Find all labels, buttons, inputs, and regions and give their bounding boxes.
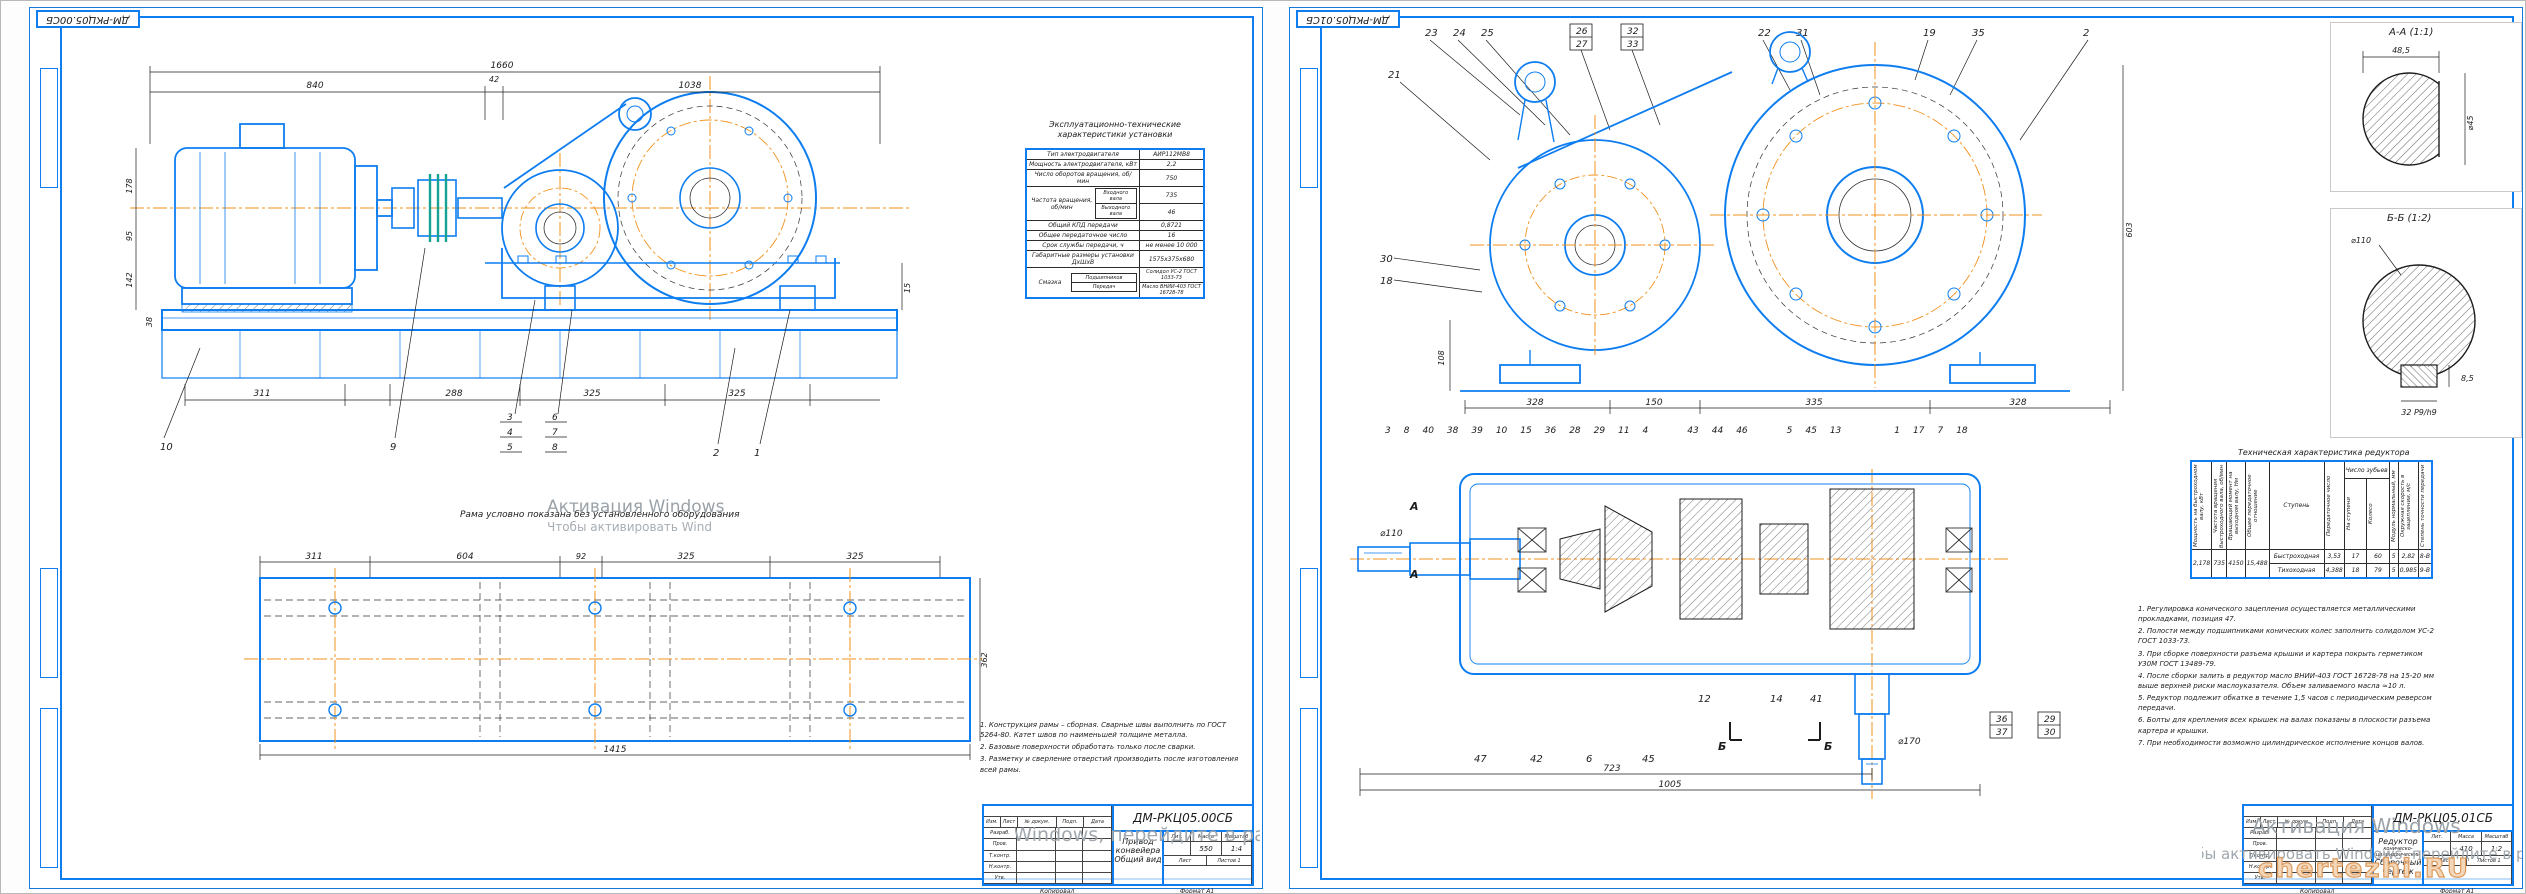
part-callout: 18 bbox=[1956, 426, 1967, 436]
part-callout: 13 bbox=[1830, 426, 1841, 436]
part-callout: 40 bbox=[1422, 426, 1433, 436]
part-callout: 44 bbox=[1712, 426, 1723, 436]
dim-label: 723 bbox=[1603, 764, 1620, 774]
part-callout: 35 bbox=[1972, 28, 1985, 39]
technical-notes: 1. Конструкция рамы – сборная. Сварные ш… bbox=[980, 720, 1242, 777]
spec-label: Срок службы передачи, ч bbox=[1026, 241, 1140, 251]
chertezhi-watermark: chertezhi.RU bbox=[2258, 854, 2470, 884]
dim-label: 38 bbox=[145, 317, 154, 327]
part-callout: 38 bbox=[1447, 426, 1458, 436]
kopiroval-label: Копировал bbox=[2300, 888, 2334, 894]
tech-cell: 8-В bbox=[2418, 550, 2432, 564]
part-callout: 2 bbox=[2083, 28, 2089, 39]
dim-label: 178 bbox=[125, 178, 134, 193]
spec-table: Тип электродвигателяАИР112МВ8 Мощность э… bbox=[1025, 148, 1205, 299]
part-callout: 19 bbox=[1923, 28, 1936, 39]
tech-cell: 2,82 bbox=[2398, 550, 2418, 564]
dim-label: 95 bbox=[125, 231, 134, 241]
part-callout: 33 bbox=[1627, 40, 1639, 50]
dim-label: 288 bbox=[445, 389, 462, 399]
sheet-right: ДМ-РКЦ05.01СБ 23 24 25 26 27 32 33 bbox=[1289, 7, 2523, 889]
tech-value: 4150 bbox=[2227, 550, 2245, 578]
callout-leaders bbox=[1394, 40, 2088, 292]
tech-cell: 0,985 bbox=[2398, 564, 2418, 578]
part-callout: 5 bbox=[507, 443, 513, 453]
dim-label: 142 bbox=[125, 272, 134, 287]
note-item: 2. Базовые поверхности обработать только… bbox=[980, 742, 1242, 752]
spec-value: 735 bbox=[1140, 187, 1205, 204]
part-callout: 46 bbox=[1736, 426, 1747, 436]
cut-plane-marks bbox=[1730, 722, 1820, 740]
spec-value: 2,2 bbox=[1140, 160, 1205, 170]
part-callout: 26 bbox=[1576, 27, 1588, 37]
part-callout: 10 bbox=[1496, 426, 1507, 436]
dimension-lines bbox=[136, 66, 902, 406]
dim-label: 108 bbox=[1437, 350, 1446, 365]
dim-label: 325 bbox=[583, 389, 600, 399]
part-callout: 41 bbox=[1810, 694, 1823, 705]
note-item: 6. Болты для крепления всех крышек на ва… bbox=[2138, 715, 2438, 735]
part-callout: 29 bbox=[1594, 426, 1605, 436]
dim-label: 92 bbox=[576, 552, 586, 561]
part-callout: 18 bbox=[1380, 276, 1393, 287]
tech-cell: 17 bbox=[2344, 550, 2366, 564]
windows-activation-watermark: Активация Windows bbox=[2252, 814, 2461, 838]
part-callout: 8 bbox=[552, 443, 558, 453]
note-item: 4. После сборки залить в редуктор масло … bbox=[2138, 671, 2438, 691]
note-item: 2. Полости между подшипниками конических… bbox=[2138, 626, 2438, 646]
tech-cell: 3,53 bbox=[2324, 550, 2344, 564]
tech-header: Общее передаточное отношение bbox=[2247, 464, 2259, 548]
tb-label: Н.контр. bbox=[984, 862, 1017, 873]
section-aa-label: А-А (1:1) bbox=[2389, 27, 2433, 38]
tb-label: Разраб. bbox=[984, 828, 1017, 839]
part-callout: 11 bbox=[1618, 426, 1629, 436]
tb-label: Лист bbox=[1164, 856, 1207, 866]
part-callout: 37 bbox=[1996, 728, 2008, 738]
part-callout: 27 bbox=[1576, 40, 1588, 50]
spec-value: 750 bbox=[1140, 170, 1205, 187]
tech-cell: Быстроходная bbox=[2269, 550, 2324, 564]
note-item: 3. Разметку и сверление отверстий произв… bbox=[980, 754, 1242, 774]
plan-centerlines bbox=[244, 568, 982, 750]
watermark-text: Чтобы активировать Windows, перейдите в … bbox=[1015, 824, 1260, 846]
tb-label: Т.контр. bbox=[984, 851, 1017, 862]
margin-box bbox=[40, 68, 58, 188]
spec-label: Мощность электродвигателя, кВт bbox=[1026, 160, 1140, 170]
part-callout: 21 bbox=[1388, 70, 1401, 81]
tech-value: 2,178 bbox=[2191, 550, 2212, 578]
spec-value: 16 bbox=[1140, 231, 1205, 241]
dim-label: 311 bbox=[253, 389, 270, 399]
part-callout: 30 bbox=[1380, 254, 1393, 265]
spec-value: Масло ВНИИ-403 ГОСТ 16728-78 bbox=[1140, 283, 1205, 299]
part-callout: 9 bbox=[390, 442, 396, 453]
dim-label: 150 bbox=[1645, 398, 1662, 408]
front-centerlines bbox=[1470, 42, 2042, 388]
part-callout: 15 bbox=[1520, 426, 1531, 436]
dim-label: 603 bbox=[2125, 222, 2134, 237]
part-callout: 17 bbox=[1913, 426, 1924, 436]
part-callout: 6 bbox=[552, 413, 558, 423]
part-callout: 4 bbox=[1643, 426, 1649, 436]
part-callout: 10 bbox=[160, 442, 173, 453]
dim-label: ⌀170 bbox=[1898, 737, 1921, 747]
tech-cell: 5 bbox=[2389, 550, 2398, 564]
part-callout: 39 bbox=[1471, 426, 1482, 436]
cut-label-b: Б bbox=[1718, 740, 1726, 753]
dim-label: 335 bbox=[1805, 398, 1822, 408]
spec-label: Габаритные размеры установки ДхШхВ bbox=[1026, 251, 1140, 268]
part-callout: 3 bbox=[507, 413, 513, 423]
dim-label: 325 bbox=[677, 552, 694, 562]
spec-value: не менее 10 000 bbox=[1140, 241, 1205, 251]
spec-value: Солидол УС-2 ГОСТ 1033-73 bbox=[1140, 268, 1205, 283]
dim-label: 32 P9/h9 bbox=[2401, 408, 2437, 417]
tech-header: Число зубьев bbox=[2344, 461, 2389, 479]
tech-cell: 9-В bbox=[2418, 564, 2432, 578]
windows-activation-watermark-overlay: Чтобы активировать Windows, перейдите в … bbox=[1015, 824, 1260, 850]
tech-cell: Тихоходная bbox=[2269, 564, 2324, 578]
cut-label-a: А bbox=[1410, 500, 1419, 513]
tech-header: Мощность на быстроходном валу, кВт bbox=[2193, 464, 2205, 548]
part-callout: 12 bbox=[1698, 694, 1711, 705]
note-item: 5. Редуктор подлежит обкатке в течение 1… bbox=[2138, 693, 2438, 713]
drawing-viewer: ДМ-РКЦ05.00СБ bbox=[0, 0, 2526, 894]
dim-label: 15 bbox=[903, 283, 912, 293]
reducer-housing bbox=[458, 92, 840, 310]
dim-label: 311 bbox=[305, 552, 322, 562]
dim-label: 1038 bbox=[679, 81, 702, 91]
spec-value: 46 bbox=[1140, 204, 1205, 221]
part-callout: 1 bbox=[1894, 426, 1900, 436]
part-callout: 36 bbox=[1996, 715, 2008, 725]
part-callout: 3 bbox=[1385, 426, 1391, 436]
spec-caption-line1: Эксплуатационно-технические bbox=[1049, 120, 1181, 129]
reducer-front-view: 23 24 25 26 27 32 33 22 31 19 35 2 21 30… bbox=[1370, 20, 2140, 420]
tech-header: Передаточное число bbox=[2326, 464, 2332, 548]
dim-label: 8,5 bbox=[2461, 374, 2474, 383]
plan-dim-lines bbox=[260, 556, 980, 760]
reducer-section-view: Б Б ⌀110 ⌀170 723 1005 47 42 6 45 12 14 … bbox=[1350, 444, 2100, 804]
section-callout-row: 3 8 40 38 39 10 15 36 28 29 11 4 43 44 4… bbox=[1385, 426, 1968, 436]
section-bb-label: Б-Б (1:2) bbox=[2387, 213, 2431, 224]
tech-cell: 79 bbox=[2367, 564, 2389, 578]
spec-label: Число оборотов вращения, об/мин bbox=[1026, 170, 1140, 187]
tb-label: Утв. bbox=[984, 873, 1017, 884]
part-callout: 5 bbox=[1787, 426, 1793, 436]
note-item: 1. Конструкция рамы – сборная. Сварные ш… bbox=[980, 720, 1242, 740]
spec-table-caption: Эксплуатационно-технические характеристи… bbox=[1020, 120, 1210, 140]
tb-label: Масштаб bbox=[2482, 832, 2512, 842]
spec-label: Частота вращения, об/мин bbox=[1029, 189, 1095, 219]
part-callout: 7 bbox=[552, 428, 558, 438]
part-callout: 2 bbox=[713, 448, 719, 459]
callout-leaders bbox=[164, 248, 790, 452]
tech-cell: 60 bbox=[2367, 550, 2389, 564]
tech-header: Частота вращения быстроходного вала, об/… bbox=[2213, 464, 2225, 548]
dim-label: 328 bbox=[2009, 398, 2026, 408]
spec-value: 0,8721 bbox=[1140, 221, 1205, 231]
part-callout: 45 bbox=[1805, 426, 1816, 436]
part-callout: 7 bbox=[1937, 426, 1943, 436]
dim-label: 48,5 bbox=[2392, 46, 2410, 55]
tb-label: Изм. bbox=[984, 817, 1001, 828]
windows-activation-watermark: Активация Windows bbox=[547, 497, 724, 517]
section-bb-inset: Б-Б (1:2) ⌀110 32 P9/h9 8,5 bbox=[2330, 208, 2522, 438]
spec-sublabel: Входного вала bbox=[1095, 189, 1136, 204]
section-aa-drawing: 48,5 ⌀45 bbox=[2331, 23, 2521, 191]
part-callout: 32 bbox=[1627, 27, 1639, 37]
margin-box bbox=[1300, 68, 1318, 188]
dim-label: ⌀110 bbox=[2351, 236, 2371, 245]
part-callout: 45 bbox=[1642, 754, 1655, 765]
spec-label: Тип электродвигателя bbox=[1026, 149, 1140, 160]
spec-sublabel: Подшипников bbox=[1071, 274, 1136, 283]
part-callout: 30 bbox=[2044, 728, 2056, 738]
drawing-title-line2: Общий вид bbox=[1114, 855, 1162, 864]
note-item: 7. При необходимости возможно цилиндриче… bbox=[2138, 738, 2438, 748]
tech-table: Мощность на быстроходном валу, кВт Часто… bbox=[2190, 460, 2433, 579]
part-callout: 14 bbox=[1770, 694, 1783, 705]
note-item: 3. При сборке поверхности разъема крышки… bbox=[2138, 649, 2438, 669]
tech-cell: 4,388 bbox=[2324, 564, 2344, 578]
part-callout: 36 bbox=[1545, 426, 1556, 436]
dim-label: 840 bbox=[306, 81, 323, 91]
drive-assembly-side-view: 1660 840 42 1038 311 288 325 325 178 95 … bbox=[90, 48, 920, 468]
dim-label: 1415 bbox=[604, 745, 627, 755]
technical-notes: 1. Регулировка конического зацепления ос… bbox=[2138, 604, 2438, 750]
dim-label: 325 bbox=[728, 389, 745, 399]
spec-sublabel: Выходного вала bbox=[1095, 204, 1136, 219]
spec-caption-line2: характеристики установки bbox=[1058, 130, 1173, 139]
part-callout: 43 bbox=[1687, 426, 1698, 436]
part-callout: 42 bbox=[1530, 754, 1543, 765]
dim-label: ⌀110 bbox=[1380, 529, 1403, 539]
dim-label: 1660 bbox=[491, 61, 514, 71]
spec-label: Смазка bbox=[1029, 274, 1071, 292]
part-callout: 23 bbox=[1425, 28, 1438, 39]
tech-header: На ступени bbox=[2346, 480, 2352, 548]
tech-cell: 5 bbox=[2389, 564, 2398, 578]
welded-frame bbox=[162, 310, 897, 378]
margin-box bbox=[1300, 708, 1318, 868]
part-callout: 24 bbox=[1453, 28, 1466, 39]
spec-sublabel: Передач bbox=[1071, 283, 1136, 292]
corner-designation-text: ДМ-РКЦ05.00СБ bbox=[46, 14, 129, 25]
dim-label: 1005 bbox=[1659, 780, 1682, 790]
margin-box bbox=[40, 708, 58, 868]
dim-label: 604 bbox=[456, 552, 473, 562]
housing-outline bbox=[1460, 32, 2070, 391]
tech-cell: 18 bbox=[2344, 564, 2366, 578]
tech-header: Окружная скорость в зацеплении, м/с bbox=[2400, 464, 2412, 548]
corner-designation-stamp: ДМ-РКЦ05.00СБ bbox=[36, 10, 140, 28]
note-item: 1. Регулировка конического зацепления ос… bbox=[2138, 604, 2438, 624]
part-callout: 47 bbox=[1474, 754, 1487, 765]
sheet-left: ДМ-РКЦ05.00СБ bbox=[29, 7, 1263, 889]
windows-activation-watermark-sub: Чтобы активировать Windows, перейдите в … bbox=[547, 520, 712, 534]
gears bbox=[1560, 489, 1914, 629]
tech-value: 735 bbox=[2212, 550, 2227, 578]
dim-label: ⌀45 bbox=[2466, 116, 2475, 131]
margin-box bbox=[1300, 568, 1318, 678]
tech-table-title: Техническая характеристика редуктора bbox=[2238, 448, 2410, 457]
cut-label-a: А bbox=[1410, 568, 1419, 581]
dim-label: 362 bbox=[980, 652, 989, 667]
tech-value: 15,488 bbox=[2245, 550, 2269, 578]
spec-value: 1575х375х680 bbox=[1140, 251, 1205, 268]
tech-header: Модуль нормальный, мм bbox=[2391, 464, 2397, 548]
part-callout: 4 bbox=[507, 428, 513, 438]
format-label: Формат А1 bbox=[2440, 888, 2474, 894]
dim-label: 328 bbox=[1526, 398, 1543, 408]
cut-label-b: Б bbox=[1824, 740, 1832, 753]
tech-header: Вращающий момент на выходном валу, Нм bbox=[2228, 464, 2240, 548]
tb-label: Листов 1 bbox=[1207, 856, 1252, 866]
part-callout: 28 bbox=[1569, 426, 1580, 436]
frame-plan-view: 311 604 92 325 325 1415 362 bbox=[230, 548, 990, 768]
spec-label: Общее передаточное число bbox=[1026, 231, 1140, 241]
kopiroval-label: Копировал bbox=[1040, 888, 1074, 894]
part-callout: 8 bbox=[1404, 426, 1410, 436]
tech-header: Степень точности передачи bbox=[2420, 464, 2426, 548]
part-callout: 29 bbox=[2044, 715, 2056, 725]
tb-label: Пров. bbox=[984, 839, 1017, 850]
section-bb-drawing: ⌀110 32 P9/h9 8,5 bbox=[2331, 209, 2521, 437]
spec-label: Общий КПД передачи bbox=[1026, 221, 1140, 231]
tech-header: Колесо bbox=[2368, 480, 2374, 548]
tech-header: Ступень bbox=[2269, 461, 2324, 550]
part-callout: 1 bbox=[754, 448, 760, 459]
format-label: Формат А1 bbox=[1180, 888, 1214, 894]
dim-label: 325 bbox=[846, 552, 863, 562]
section-aa-inset: А-А (1:1) 48,5 ⌀45 bbox=[2330, 22, 2522, 192]
spec-value: АИР112МВ8 bbox=[1140, 149, 1205, 160]
dim-label: 42 bbox=[489, 75, 499, 84]
part-callout: 22 bbox=[1758, 28, 1771, 39]
electric-motor bbox=[175, 124, 392, 304]
margin-box bbox=[40, 568, 58, 678]
part-callout: 6 bbox=[1586, 754, 1592, 765]
part-callout: 25 bbox=[1481, 28, 1494, 39]
